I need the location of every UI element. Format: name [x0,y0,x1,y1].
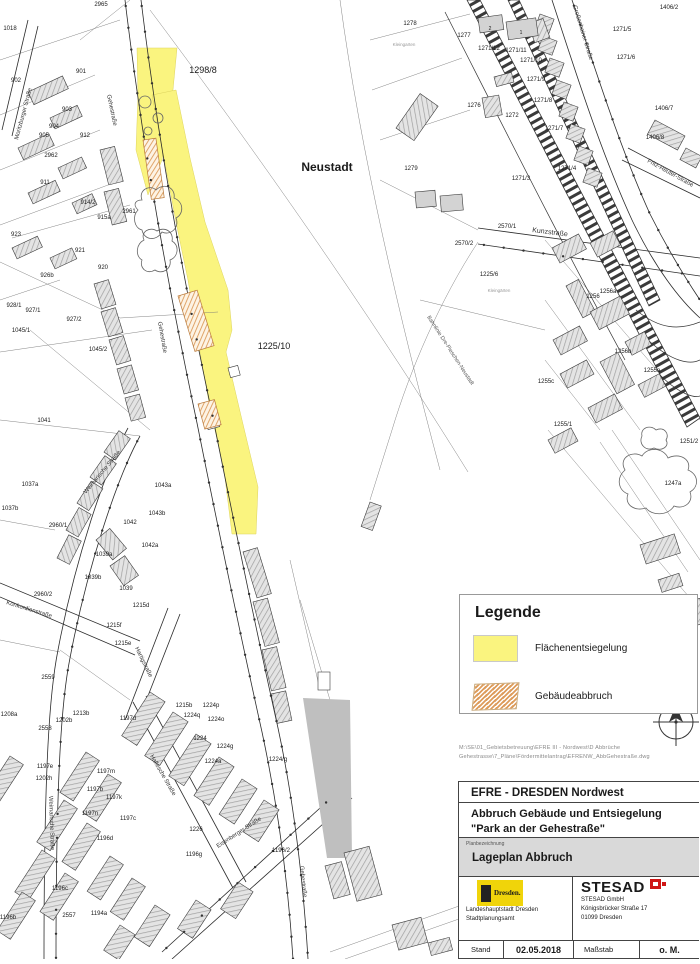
street-tree-dot [182,352,184,354]
street-tree-dot [171,210,173,212]
map-label: 1255c [538,379,554,385]
street-tree-dot [206,389,208,391]
street-tree-dot [611,118,613,120]
map-label: 2965 [94,2,108,8]
stesad-logo-icon [650,879,661,889]
street-tree-dot [55,909,57,911]
street-tree-dot [163,159,165,161]
map-label: 1037b [2,506,19,512]
map-label: 1045/2 [89,347,108,353]
map-label: 2570/1 [498,224,517,230]
map-label: 1196/2 [272,848,291,854]
client-cell: Dresden. Landeshauptstadt Dresden Stadtp… [459,877,573,940]
scale-label: Maßstab [573,941,639,958]
street-tree-dot [286,892,288,894]
street-tree-dot [605,99,607,101]
street-tree-dot [293,822,295,824]
map-label: 901 [76,69,87,75]
dresden-logo: Dresden. [477,880,523,906]
stesad-logo: STESAD [581,879,699,896]
street-tree-dot [219,898,221,900]
map-label: 2557 [62,913,76,919]
map-label: 1197c [120,816,136,822]
map-label: 1043a [155,483,172,489]
map-label: 926b [40,273,54,279]
street-tree-dot [143,136,145,138]
map-label: 902 [11,78,22,84]
street-tree-dot [621,264,623,266]
street-tree-dot [155,108,157,110]
map-label: 2961 [122,209,136,215]
street-tree-dot [185,287,187,289]
street-tree-dot [201,364,203,366]
street-tree-dot [226,568,228,570]
street-tree-dot [661,269,663,271]
street-tree-dot [618,137,620,139]
map-label: 1224p [203,703,220,709]
map-label: 1213b [73,711,90,717]
map-label: 1271/3 [512,176,531,182]
street-tree-dot [82,599,84,601]
map-label: 1279 [404,166,418,172]
file-path-line1: M:\SE\01_Gebietsbetreuung\EFRE III - Nor… [459,744,694,753]
street-tree-dot [183,931,185,933]
street-tree-dot [602,261,604,263]
street-tree-dot [71,646,73,648]
map-label: 1256 [586,294,600,300]
map-label: 1215b [176,703,193,709]
street-tree-dot [648,211,650,213]
street-tree-dot [306,952,308,954]
drawing-file-path: M:\SE\01_Gebietsbetreuung\EFRE III - Nor… [459,744,694,762]
map-label: 1255/1 [554,422,573,428]
street-tree-dot [176,236,178,238]
map-label: 1018 [3,26,17,32]
street-tree-dot [56,837,58,839]
street-tree-dot [667,247,669,249]
street-tree-dot [117,484,119,486]
map-label: 1039a [96,552,113,558]
street-tree-dot [133,70,135,72]
street-tree-dot [522,249,524,251]
street-tree-dot [249,675,251,677]
street-tree-dot [201,914,203,916]
street-tree-dot [290,797,292,799]
street-tree-dot [281,745,283,747]
street-tree-dot [153,201,155,203]
map-label: 1037a [22,482,39,488]
street-tree-dot [136,440,138,442]
street-tree-dot [150,179,152,181]
map-label: 2960/1 [49,523,68,529]
map-label: 928/1 [6,303,22,309]
street-tree-dot [127,27,129,29]
street-tree-dot [244,654,246,656]
map-label: 1202b [56,718,73,724]
street-tree-dot [598,80,600,82]
map-label: 1406/7 [655,106,674,112]
map-label: 1406/8 [646,135,665,141]
map-label: 1225/10 [258,341,291,351]
street-tree-dot [141,5,143,7]
street-tree-dot [151,82,153,84]
map-label: 1196g [186,852,202,858]
map-label: 1224a [205,759,222,765]
map-label: 2962 [44,153,58,159]
street-tree-dot [542,252,544,254]
street-tree-dot [195,417,197,419]
map-label: 1042 [123,520,137,526]
street-tree-dot [227,491,229,493]
street-tree-dot [76,622,78,624]
map-label: 1215e [115,641,132,647]
project-subject: Abbruch Gebäude und Entsiegelung "Park a… [459,803,699,838]
street-tree-dot [632,174,634,176]
street-tree-dot [264,669,266,671]
street-tree-dot [253,697,255,699]
street-tree-dot [55,933,57,935]
map-label: 1041 [37,418,51,424]
street-tree-dot [271,783,273,785]
legend-title: Legende [475,604,697,622]
street-tree-dot [212,503,214,505]
street-tree-dot [55,861,57,863]
scale-value: o. M. [639,941,699,958]
plan-name: Lageplan Abbruch [472,852,699,864]
legend-label: Flächenentsiegelung [535,643,627,654]
street-tree-dot [217,525,219,527]
map-label: 1197m [97,769,115,775]
street-tree-dot [297,848,299,850]
street-tree-dot [290,936,292,938]
map-label: 2558 [38,726,52,732]
map-label: 914/2 [80,200,96,206]
street-tree-dot [63,693,65,695]
company-cell: STESAD STESAD GmbH Königsbrücker Straße … [573,877,699,940]
map-label: Gehestraße [156,321,168,354]
street-tree-dot [248,593,250,595]
company-line3: 01099 Dresden [581,914,699,923]
map-label: 1208a [1,712,18,718]
map-label: 2 [489,26,492,32]
street-tree-dot [625,156,627,158]
street-tree-dot [161,244,163,246]
plan-name-section: Planbezeichnung Lageplan Abbruch [459,838,699,877]
file-path-line2: Gehestrasse\7_Pläne\Fördermittelantrag\E… [459,753,694,762]
map-label: 1271/5 [613,27,632,33]
street-tree-dot [67,669,69,671]
street-tree-dot [58,765,60,767]
map-label: Kleingarten [393,42,416,47]
map-label: 2960/2 [34,592,53,598]
street-tree-dot [190,313,192,315]
map-label: Hartigstraße [133,646,153,679]
map-label: 1215f [106,623,121,629]
street-tree-dot [235,611,237,613]
street-tree-dot [208,481,210,483]
map-label: 1215d [133,603,150,609]
map-label: 1256b [615,349,632,355]
dresden-logo-text: Dresden. [494,889,521,897]
map-label: Großenhainer Straße [571,5,594,62]
map-label: 1271/8 [534,98,553,104]
street-tree-dot [258,718,260,720]
map-label: 2559 [41,675,55,681]
street-tree-dot [243,567,245,569]
map-label: 903 [62,107,73,113]
subject-line1: Abbruch Gebäude und Entsiegelung [471,807,699,822]
street-tree-dot [677,264,679,266]
legend: Legende Flächenentsiegelung Gebäudeabbru… [459,594,698,714]
map-label: 1251/2 [680,439,699,445]
map-label: 927/1 [25,308,41,314]
street-tree-dot [139,114,141,116]
street-tree-dot [211,415,213,417]
gray-surface-area [303,698,352,858]
street-tree-dot [59,741,61,743]
street-tree-dot [186,374,188,376]
plan-caption: Planbezeichnung [466,841,699,847]
map-label: 1255a [644,368,661,374]
street-tree-dot [687,281,689,283]
street-tree-dot [204,460,206,462]
street-tree-dot [146,157,148,159]
street-tree-dot [562,255,564,257]
map-label: 1271/12 [478,46,500,52]
map-label: 915a [97,215,111,221]
street-tree-dot [284,870,286,872]
street-tree-dot [181,262,183,264]
map-label: 1406/2 [660,5,679,11]
map-label: 2570/2 [455,241,474,247]
street-tree-dot [109,507,111,509]
street-tree-dot [325,801,327,803]
map-label: Gehestraße [105,94,118,127]
legend-swatch-orange-hatch [471,682,519,711]
street-tree-dot [157,222,159,224]
map-label: 911 [40,180,50,186]
street-tree-dot [302,900,304,902]
map-label: 1278 [403,21,417,27]
map-label: Neustadt [301,160,352,174]
street-tree-dot [239,632,241,634]
railway [445,0,700,427]
legend-item-gebaeudeabbruch: Gebäudeabbruch [460,683,697,710]
street-tree-dot [199,438,201,440]
street-tree-dot [657,229,659,231]
street-tree-dot [503,247,505,249]
legend-label: Gebäudeabbruch [535,691,612,702]
street-tree-dot [305,926,307,928]
street-tree-dot [254,866,256,868]
street-tree-dot [167,185,169,187]
map-label: 1277 [457,33,471,39]
map-label: 921 [75,248,86,254]
stesad-logo-text: STESAD [581,879,645,896]
street-tree-dot [57,789,59,791]
street-tree-dot [173,309,175,311]
date-label: Stand [459,941,503,958]
client-line1: Landeshauptstadt Dresden [466,906,572,915]
street-tree-dot [169,287,171,289]
map-label: 1197n [82,811,98,817]
street-tree-dot [222,466,224,468]
street-tree-dot [278,826,280,828]
map-label: 1196b [0,915,17,921]
subject-line2: "Park an der Gehestraße" [471,822,699,837]
title-block: EFRE - DRESDEN Nordwest Abbruch Gebäude … [458,781,699,959]
street-tree-dot [270,695,272,697]
street-tree-dot [483,244,485,246]
map-label: 1197b [87,787,104,793]
map-label: 1271/4 [558,166,577,172]
map-label: 1196c [52,886,68,892]
street-tree-dot [125,5,127,7]
map-label: Bahnlinie Dre-Pieschen-Neustadt [425,315,475,387]
map-label: 927/2 [66,317,82,323]
street-tree-dot [232,517,234,519]
map-label: 1224o [208,717,225,723]
map-label: Kunzstraße [532,227,568,238]
street-tree-dot [230,589,232,591]
map-label: 1271/9 [527,77,546,83]
dresden-coat-of-arms-icon [481,885,491,902]
map-label: 912 [80,133,91,139]
street-tree-dot [165,266,167,268]
map-label: 1 [520,30,523,36]
map-label: 1042a [142,543,159,549]
map-label: 920 [98,265,109,271]
street-tree-dot [259,644,261,646]
map-label: 1224/g [269,757,287,763]
map-label: 1276 [467,103,481,109]
map-label: 1039 [119,586,133,592]
street-tree-dot [217,440,219,442]
street-tree-dot [237,542,239,544]
map-label: 1197e [37,764,54,770]
map-label: 1043b [149,511,166,517]
map-label: 904 [49,124,60,130]
map-label: 1226 [189,827,203,833]
map-label: 1272 [505,113,519,119]
map-label: 1271/6 [617,55,636,61]
map-label: 1271/7 [545,126,564,132]
street-tree-dot [641,267,643,269]
street-tree-dot [640,193,642,195]
street-tree-dot [177,331,179,333]
map-label: 1225/6 [480,272,499,278]
map-label: 1256a [600,289,617,295]
street-tree-dot [285,771,287,773]
map-label: Kleingärten [488,288,511,293]
map-label: 1224 [193,736,207,742]
map-label: 1197d [120,716,136,722]
street-tree-dot [136,92,138,94]
map-label: Gehestraße [298,866,307,899]
map-label: 905 [39,133,50,139]
street-tree-dot [253,618,255,620]
street-tree-dot [582,258,584,260]
map-label: 1298/8 [189,65,217,75]
street-tree-dot [275,720,277,722]
map-label: 1045/1 [12,328,31,334]
street-tree-dot [196,338,198,340]
date-value: 02.05.2018 [503,941,573,958]
street-tree-dot [56,813,58,815]
map-label: 1194a [91,911,108,917]
street-tree-dot [101,529,103,531]
map-label: 1271/10 [520,58,542,64]
map-label: 1247a [665,481,682,487]
project-title: EFRE - DRESDEN Nordwest [459,782,699,803]
map-label: 923 [11,232,22,238]
legend-item-flaechenentsiegelung: Flächenentsiegelung [460,635,697,662]
street-tree-dot [130,48,132,50]
map-label: 1039b [85,575,102,581]
street-tree-dot [289,834,291,836]
street-tree-dot [263,740,265,742]
street-tree-dot [221,546,223,548]
client-line2: Stadtplanungsamt [466,915,572,924]
street-tree-dot [190,395,192,397]
street-tree-dot [144,31,146,33]
legend-swatch-yellow [473,635,518,662]
meta-row: Stand 02.05.2018 Maßstab o. M. [459,941,699,958]
street-tree-dot [159,134,161,136]
map-label: 1196d [97,836,113,842]
street-tree-dot [681,272,683,274]
street-tree-dot [147,56,149,58]
street-tree-dot [288,914,290,916]
organizations-section: Dresden. Landeshauptstadt Dresden Stadtp… [459,877,699,941]
map-label: 1224g [217,744,234,750]
map-label: 1197k [106,795,123,801]
street-tree-dot [307,817,309,819]
map-label: 1202h [36,776,53,782]
street-tree-dot [275,805,277,807]
street-tree-dot [592,61,594,63]
company-line1: STESAD GmbH [581,896,699,905]
map-label: 1271/11 [505,48,527,54]
company-line2: Königsbrücker Straße 17 [581,905,699,914]
map-label: 1224q [184,713,201,719]
street-tree-dot [236,882,238,884]
map-label: Konkordienstraße [5,600,53,620]
street-tree-dot [165,947,167,949]
street-tree-dot [126,462,128,464]
